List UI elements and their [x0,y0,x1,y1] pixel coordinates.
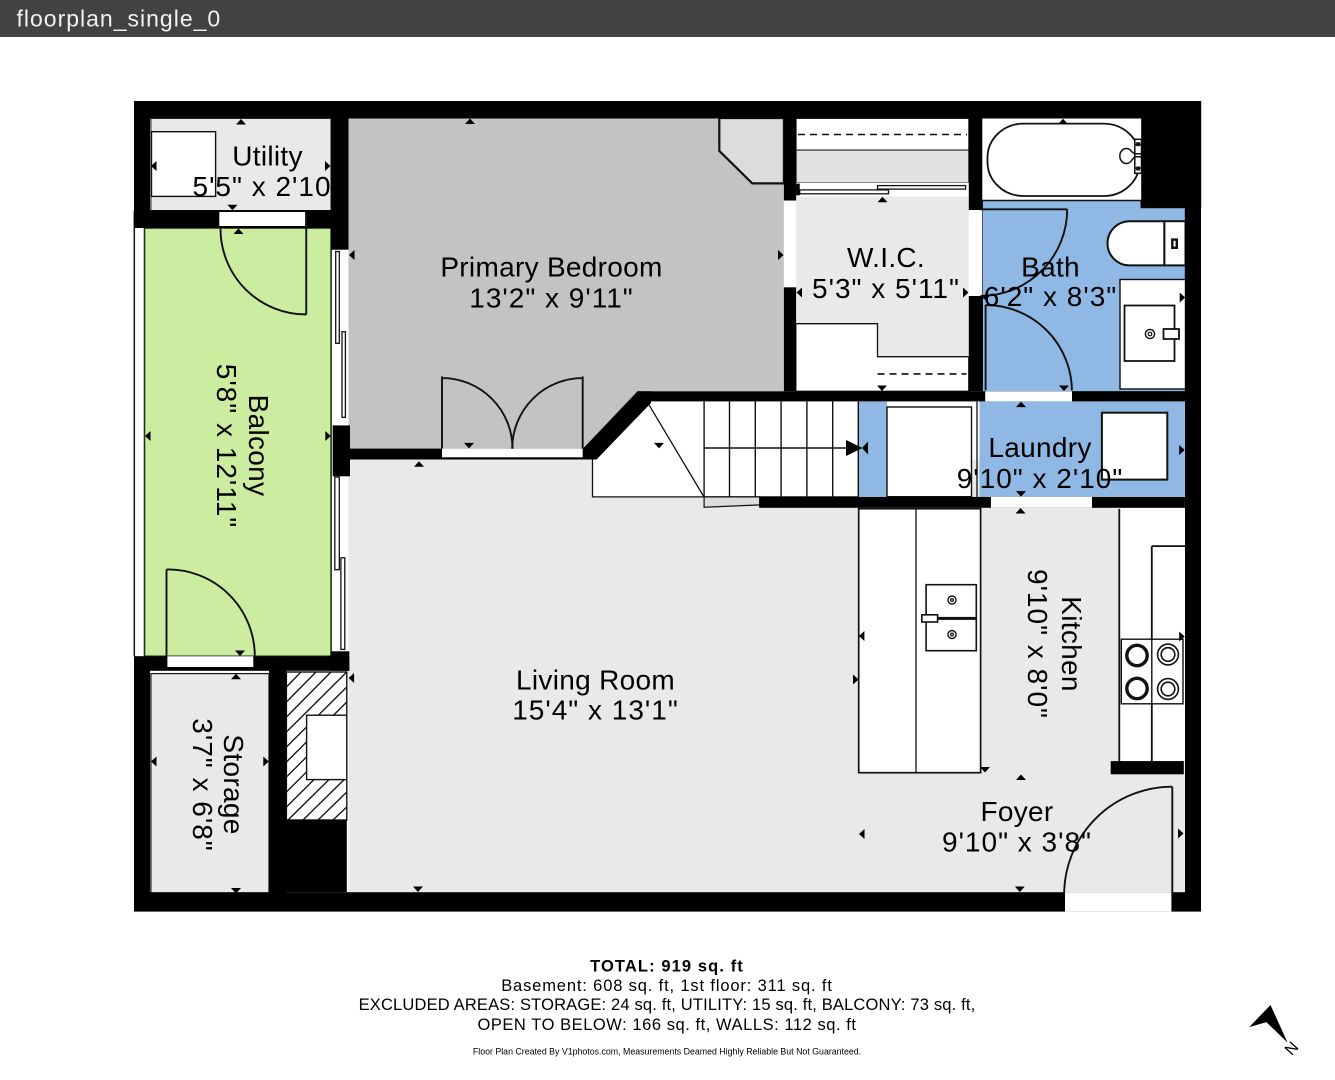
svg-text:Primary Bedroom: Primary Bedroom [440,252,662,283]
svg-text:Kitchen: Kitchen [1056,596,1087,692]
svg-text:Utility: Utility [232,141,303,172]
svg-text:Storage: Storage [218,734,249,834]
svg-text:TOTAL: 919 sq. ft: TOTAL: 919 sq. ft [590,957,744,975]
svg-text:OPEN TO BELOW: 166 sq. ft, WAL: OPEN TO BELOW: 166 sq. ft, WALLS: 112 sq… [477,1016,856,1034]
svg-text:15'4" x 13'1": 15'4" x 13'1" [512,694,679,725]
svg-text:Foyer: Foyer [980,796,1053,827]
svg-text:Balcony: Balcony [243,395,274,497]
svg-text:5'5" x 2'10": 5'5" x 2'10" [193,171,343,202]
svg-text:Floor Plan Created By V1photos: Floor Plan Created By V1photos.com, Meas… [473,1046,861,1056]
svg-text:3'7" x 6'8": 3'7" x 6'8" [187,718,218,851]
svg-text:5'3" x 5'11": 5'3" x 5'11" [812,273,960,304]
svg-text:9'10" x 3'8": 9'10" x 3'8" [942,827,1092,858]
svg-text:Basement: 608 sq. ft, 1st floo: Basement: 608 sq. ft, 1st floor: 311 sq.… [501,977,833,995]
svg-text:5'8" x 12'11": 5'8" x 12'11" [211,364,242,528]
svg-text:Bath: Bath [1021,251,1080,282]
svg-text:6'2" x 8'3": 6'2" x 8'3" [984,281,1117,312]
svg-text:Laundry: Laundry [988,432,1091,463]
svg-text:EXCLUDED AREAS: STORAGE: 24 sq: EXCLUDED AREAS: STORAGE: 24 sq. ft, UTIL… [359,996,976,1014]
svg-text:W.I.C.: W.I.C. [847,242,925,273]
svg-text:floorplan_single_0: floorplan_single_0 [17,6,222,32]
svg-text:13'2" x 9'11": 13'2" x 9'11" [469,283,633,314]
svg-text:9'10" x 2'10": 9'10" x 2'10" [957,463,1124,494]
svg-text:9'10" x 8'0": 9'10" x 8'0" [1022,569,1053,719]
svg-text:Living Room: Living Room [516,664,675,695]
